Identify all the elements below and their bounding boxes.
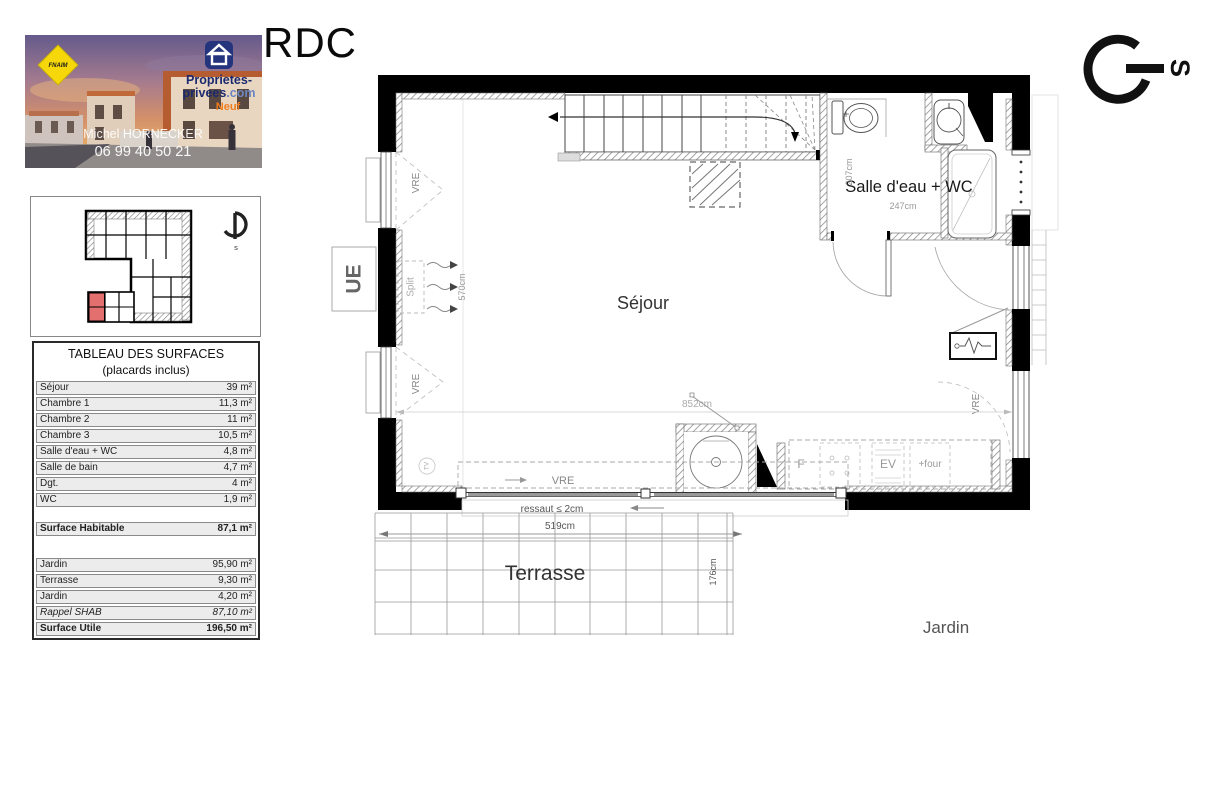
sink-label: EV — [880, 457, 896, 471]
dim-519-line: 519cm — [379, 521, 742, 537]
highlighted-unit-block — [88, 292, 134, 322]
kitchen: F EV +four — [789, 440, 1000, 489]
surface-table-title: TABLEAU DES SURFACES — [34, 343, 258, 363]
fnaim-text: FNAIM — [49, 63, 69, 69]
terrace-label: Terrasse — [505, 562, 586, 585]
left-window-1: VRE — [366, 147, 443, 233]
table-row: Dgt.4 m² — [36, 477, 256, 492]
table-row-rappel: Rappel SHAB87,10 m² — [36, 606, 256, 621]
north-arrow-small: s — [225, 213, 246, 252]
listing-photo: FNAIM Proprietes- privees.com Neuf Miche… — [25, 35, 262, 168]
living-room-label: Séjour — [617, 293, 669, 313]
radiator — [950, 333, 996, 359]
outdoor-unit: UE — [332, 247, 376, 311]
table-row: Chambre 211 m² — [36, 413, 256, 428]
staircase — [548, 95, 824, 161]
surface-table: TABLEAU DES SURFACES (placards inclus) S… — [32, 341, 260, 640]
brand-suffix: .com — [226, 86, 255, 100]
svg-text:privees.com: privees.com — [183, 86, 256, 100]
photo-render: FNAIM Proprietes- privees.com Neuf Miche… — [25, 35, 262, 168]
table-row: Salle de bain4,7 m² — [36, 461, 256, 476]
table-row: Jardin4,20 m² — [36, 590, 256, 605]
dim-176: 176cm — [708, 558, 718, 585]
table-row: Chambre 111,3 m² — [36, 397, 256, 412]
agent-phone: 06 99 40 50 21 — [95, 144, 192, 160]
table-row: WC1,9 m² — [36, 493, 256, 508]
fridge-label: F — [797, 457, 804, 471]
dim-570: 570cm — [457, 273, 467, 300]
surface-table-subtitle: (placards inclus) — [34, 363, 258, 381]
site-plan-thumbnail: s — [30, 196, 261, 337]
bathroom-label: Salle d'eau + WC — [845, 178, 973, 196]
garden-label: Jardin — [923, 618, 969, 637]
entrance-door — [1012, 150, 1030, 215]
right-window — [1012, 241, 1030, 314]
dim-852: 852cm — [682, 399, 712, 410]
brand-line2: privees — [183, 86, 227, 100]
exterior-porch — [1032, 95, 1058, 365]
table-row: Séjour39 m² — [36, 381, 256, 396]
vre-label-bay: VRE — [552, 475, 575, 487]
table-row: Chambre 310,5 m² — [36, 429, 256, 444]
dim-207: 207cm — [844, 158, 854, 185]
bathroom: Salle d'eau + WC 247cm 207cm — [820, 93, 1012, 296]
vre-label-left2: VRE — [411, 373, 422, 394]
brand-tag: Neuf — [216, 101, 241, 113]
table-row-habitable: Surface Habitable87,1 m² — [36, 522, 256, 537]
hob — [820, 443, 860, 487]
dim-519: 519cm — [545, 521, 575, 532]
agent-name: Michel HORNECKER — [83, 127, 202, 141]
duct-shaft — [690, 162, 740, 207]
table-row-utile: Surface Utile196,50 m² — [36, 622, 256, 637]
table-row: Terrasse9,30 m² — [36, 574, 256, 589]
floor-plan: Salle d'eau + WC 247cm 207cm VRE — [330, 20, 1227, 800]
airflow-arrows — [427, 263, 451, 312]
tv-label: TV — [424, 461, 431, 470]
left-window-2: VRE — [366, 342, 443, 423]
dim-852-line: 852cm — [396, 399, 1012, 415]
brand-line1: Proprietes- — [186, 73, 252, 87]
split-label: Split — [406, 277, 417, 297]
table-row: Jardin95,90 m² — [36, 558, 256, 573]
vre-label-left1: VRE — [411, 172, 422, 193]
washbasin — [934, 100, 964, 144]
bathroom-door — [886, 240, 891, 296]
compass-south: S — [1165, 59, 1195, 77]
north-arrow: S — [1088, 39, 1195, 99]
oven-label: +four — [918, 459, 942, 470]
ue-label: UE — [343, 264, 366, 293]
table-row: Salle d'eau + WC4,8 m² — [36, 445, 256, 460]
split-unit: Split 570cm — [398, 261, 467, 313]
tv-outlet: TV — [419, 458, 435, 474]
vre-label-right: VRE — [971, 393, 982, 414]
dim-247: 247cm — [889, 201, 916, 211]
toilet — [827, 99, 886, 137]
compass-south-small: s — [234, 243, 238, 252]
right-french-window: VRE — [938, 366, 1030, 463]
